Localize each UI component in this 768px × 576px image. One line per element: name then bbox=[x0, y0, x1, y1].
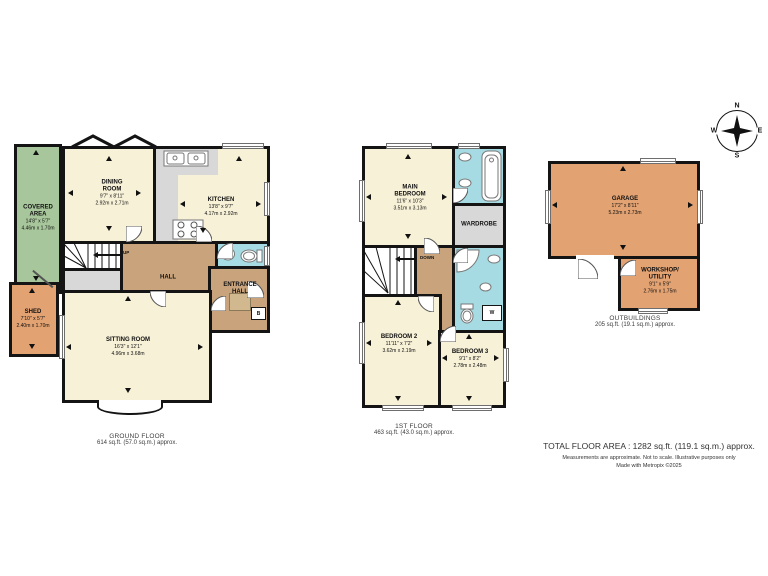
washbasin-icon bbox=[458, 178, 472, 188]
window bbox=[386, 143, 432, 149]
washbasin-icon bbox=[479, 282, 492, 292]
dimension-arrow-icon bbox=[494, 355, 499, 361]
window bbox=[382, 405, 424, 411]
kitchen-sink-icon bbox=[163, 150, 209, 167]
total-floor-area: TOTAL FLOOR AREA : 1282 sq.ft. (119.1 sq… bbox=[543, 441, 755, 451]
dining-bay-window bbox=[70, 133, 158, 149]
room-label-bedroom-2: BEDROOM 2 11'11" x 7'2" 3.62m x 2.19m bbox=[381, 334, 417, 354]
stairs-first bbox=[362, 245, 418, 297]
dimension-arrow-icon bbox=[66, 344, 71, 350]
cupboard-box: W bbox=[482, 305, 502, 321]
dimension-arrow-icon bbox=[180, 201, 185, 207]
washbasin-icon bbox=[487, 254, 501, 264]
door-arc bbox=[453, 248, 468, 263]
dimension-arrow-icon bbox=[106, 156, 112, 161]
stairs-direction-arrow-icon bbox=[93, 252, 98, 258]
dimension-arrow-icon bbox=[688, 202, 693, 208]
window bbox=[458, 143, 480, 149]
stairs-direction-line bbox=[98, 254, 120, 256]
room-label-main-bedroom: MAIN BEDROOM 11'6" x 10'3" 3.51m x 3.13m bbox=[392, 184, 428, 211]
dimension-arrow-icon bbox=[29, 288, 35, 293]
workshop-door-arc bbox=[620, 260, 636, 276]
room-label-garage: GARAGE 17'2" x 8'11" 5.23m x 2.73m bbox=[608, 196, 641, 216]
room-label-entrance-hall: ENTRANCE HALL bbox=[220, 282, 260, 296]
window bbox=[59, 315, 65, 359]
boiler-label: B bbox=[257, 311, 261, 317]
floor-area: 463 sq.ft. (43.0 sq.m.) approx. bbox=[374, 430, 454, 436]
window bbox=[222, 143, 264, 149]
dimension-arrow-icon bbox=[256, 201, 261, 207]
stairs-direction-arrow-icon bbox=[395, 256, 400, 262]
dimension-arrow-icon bbox=[552, 202, 557, 208]
compass-north-label: N bbox=[733, 103, 740, 110]
compass-west-label: W bbox=[710, 128, 719, 135]
window bbox=[545, 190, 551, 224]
bathtub-icon bbox=[481, 150, 502, 202]
toilet-icon bbox=[459, 303, 475, 325]
door-arc bbox=[453, 188, 468, 203]
room-label-hall: HALL bbox=[160, 274, 176, 281]
stairs-up-label: UP bbox=[123, 250, 129, 255]
stairs-direction-line bbox=[400, 258, 416, 260]
dimension-arrow-icon bbox=[29, 344, 35, 349]
dimension-arrow-icon bbox=[200, 228, 206, 233]
door-arc bbox=[126, 226, 142, 242]
floor-title: OUTBUILDINGS bbox=[595, 315, 675, 322]
dimension-arrow-icon bbox=[125, 388, 131, 393]
dimension-arrow-icon bbox=[106, 226, 112, 231]
room-hall bbox=[120, 241, 219, 293]
washbasin-icon bbox=[458, 152, 472, 162]
dimension-arrow-icon bbox=[68, 190, 73, 196]
window bbox=[640, 158, 676, 164]
dimension-arrow-icon bbox=[620, 245, 626, 250]
dimension-arrow-icon bbox=[236, 156, 242, 161]
stairs-down-label: DOWN bbox=[420, 255, 434, 260]
floor-title: 1ST FLOOR bbox=[374, 423, 454, 430]
window bbox=[697, 190, 703, 224]
dimension-arrow-icon bbox=[366, 194, 371, 200]
garage-door-arc bbox=[578, 259, 598, 279]
room-label-sitting: SITTING ROOM 16'3" x 12'1" 4.96m x 3.68m bbox=[106, 337, 150, 357]
dimension-arrow-icon bbox=[125, 296, 131, 301]
compass-south-label: S bbox=[734, 153, 741, 160]
dimension-arrow-icon bbox=[442, 355, 447, 361]
room-label-covered-area: COVERED AREA 14'8" x 5'7" 4.46m x 1.70m bbox=[21, 204, 55, 231]
dimension-arrow-icon bbox=[405, 154, 411, 159]
window bbox=[264, 246, 270, 266]
compass-star-icon bbox=[720, 114, 754, 148]
door-arc bbox=[440, 326, 456, 342]
room-label-shed: SHED 7'10" x 5'7" 2.40m x 1.70m bbox=[16, 309, 49, 329]
dimension-arrow-icon bbox=[136, 190, 141, 196]
first-floor-caption: 1ST FLOOR 463 sq.ft. (43.0 sq.m.) approx… bbox=[374, 423, 454, 436]
window bbox=[359, 180, 365, 222]
dimension-arrow-icon bbox=[427, 340, 432, 346]
cupboard-label: W bbox=[490, 310, 495, 316]
dimension-arrow-icon bbox=[366, 340, 371, 346]
door-arc bbox=[217, 243, 233, 259]
floor-area: 205 sq.ft. (19.1 sq.m.) approx. bbox=[595, 322, 675, 328]
dimension-arrow-icon bbox=[395, 396, 401, 401]
dimension-arrow-icon bbox=[466, 396, 472, 401]
room-label-dining: DINING ROOM 9'7" x 8'11" 2.92m x 2.71m bbox=[95, 179, 128, 206]
disclaimer-line-2: Made with Metropix ©2025 bbox=[616, 463, 682, 469]
dimension-arrow-icon bbox=[442, 194, 447, 200]
dimension-arrow-icon bbox=[33, 150, 39, 155]
room-label-kitchen: KITCHEN 13'8" x 9'7" 4.17m x 2.92m bbox=[204, 197, 237, 217]
dimension-arrow-icon bbox=[33, 276, 39, 281]
window bbox=[452, 405, 492, 411]
window bbox=[264, 182, 270, 216]
door-arc bbox=[424, 238, 440, 254]
boiler-box: B bbox=[251, 307, 266, 320]
bay-window bbox=[97, 400, 163, 415]
door-arc bbox=[418, 296, 434, 312]
dimension-arrow-icon bbox=[466, 334, 472, 339]
window bbox=[359, 322, 365, 364]
floorplan-canvas: UP B bbox=[0, 0, 768, 576]
outbuildings-caption: OUTBUILDINGS 205 sq.ft. (19.1 sq.m.) app… bbox=[595, 315, 675, 328]
floor-area: 614 sq.ft. (57.0 sq.m.) approx. bbox=[97, 440, 177, 446]
toilet-icon bbox=[240, 248, 264, 264]
room-label-workshop: WORKSHOP/ UTILITY 9'1" x 5'9" 2.76m x 1.… bbox=[638, 267, 682, 294]
window bbox=[638, 308, 668, 314]
dimension-arrow-icon bbox=[405, 234, 411, 239]
disclaimer-line-1: Measurements are approximate. Not to sca… bbox=[562, 455, 735, 461]
window bbox=[503, 348, 509, 382]
compass-east-label: E bbox=[757, 128, 764, 135]
floor-title: GROUND FLOOR bbox=[97, 433, 177, 440]
room-label-wardrobe: WARDROBE bbox=[461, 221, 497, 228]
ground-floor-caption: GROUND FLOOR 614 sq.ft. (57.0 sq.m.) app… bbox=[97, 433, 177, 446]
room-label-bedroom-3: BEDROOM 3 9'1" x 8'2" 2.78m x 2.48m bbox=[452, 349, 488, 369]
dimension-arrow-icon bbox=[395, 300, 401, 305]
dimension-arrow-icon bbox=[198, 344, 203, 350]
door-arc bbox=[150, 291, 166, 307]
door-arc bbox=[211, 296, 226, 311]
dimension-arrow-icon bbox=[620, 166, 626, 171]
